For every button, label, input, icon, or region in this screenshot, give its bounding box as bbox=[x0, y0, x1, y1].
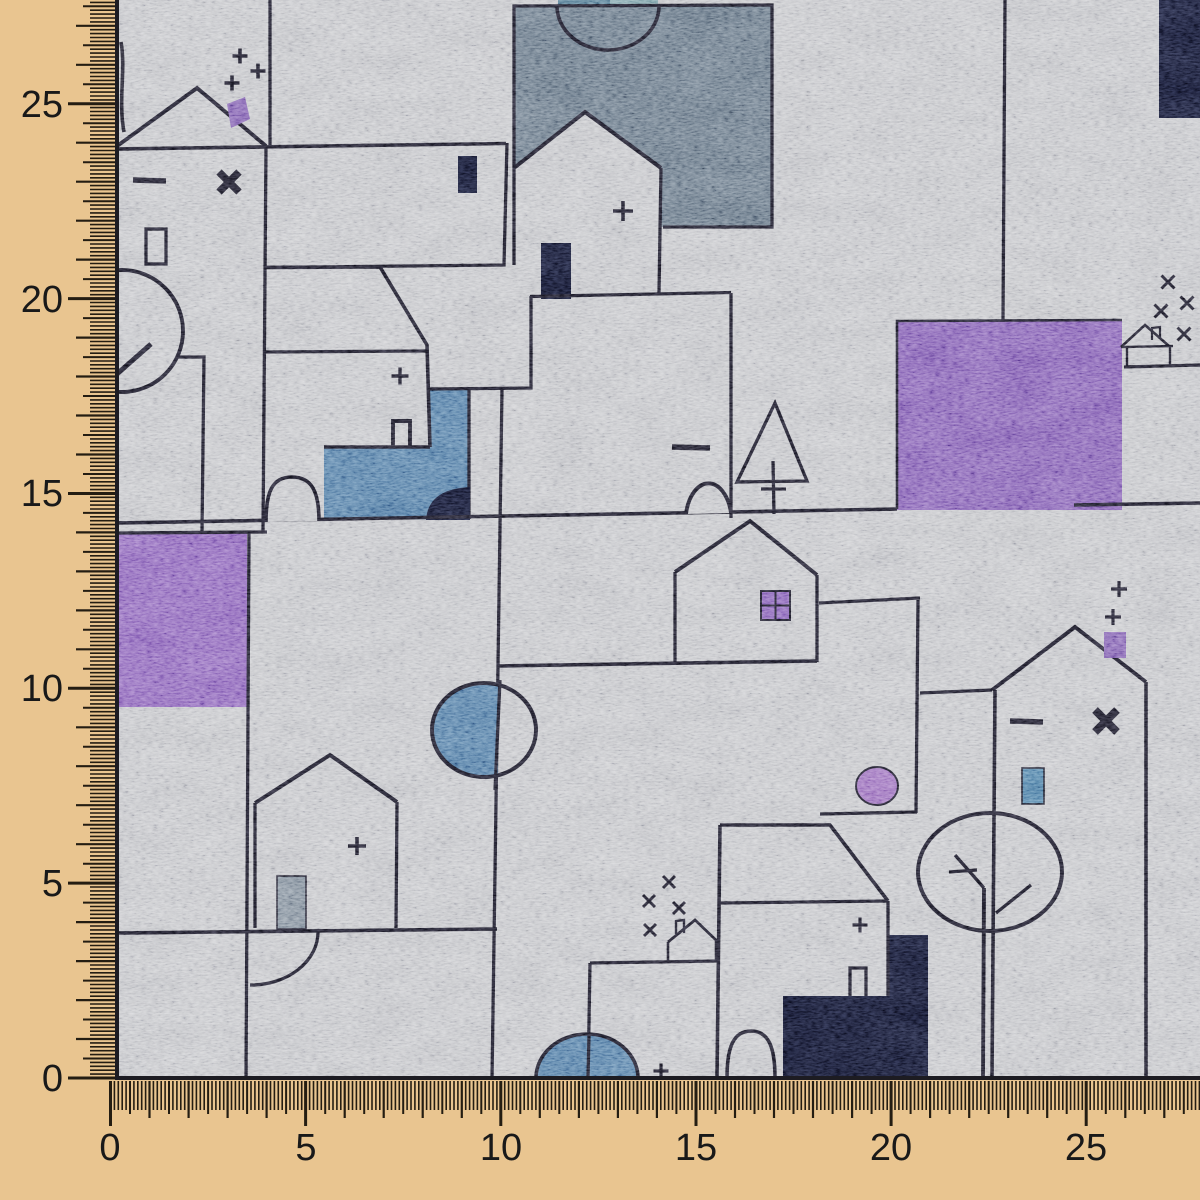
svg-text:25: 25 bbox=[1065, 1127, 1107, 1169]
svg-text:5: 5 bbox=[42, 863, 63, 905]
svg-text:20: 20 bbox=[870, 1127, 912, 1169]
svg-text:5: 5 bbox=[295, 1127, 316, 1169]
svg-text:0: 0 bbox=[42, 1058, 63, 1100]
svg-text:15: 15 bbox=[675, 1127, 717, 1169]
svg-text:20: 20 bbox=[21, 279, 63, 321]
svg-text:10: 10 bbox=[21, 668, 63, 710]
svg-text:10: 10 bbox=[480, 1127, 522, 1169]
svg-text:0: 0 bbox=[99, 1127, 120, 1169]
svg-text:15: 15 bbox=[21, 473, 63, 515]
svg-text:25: 25 bbox=[21, 84, 63, 126]
